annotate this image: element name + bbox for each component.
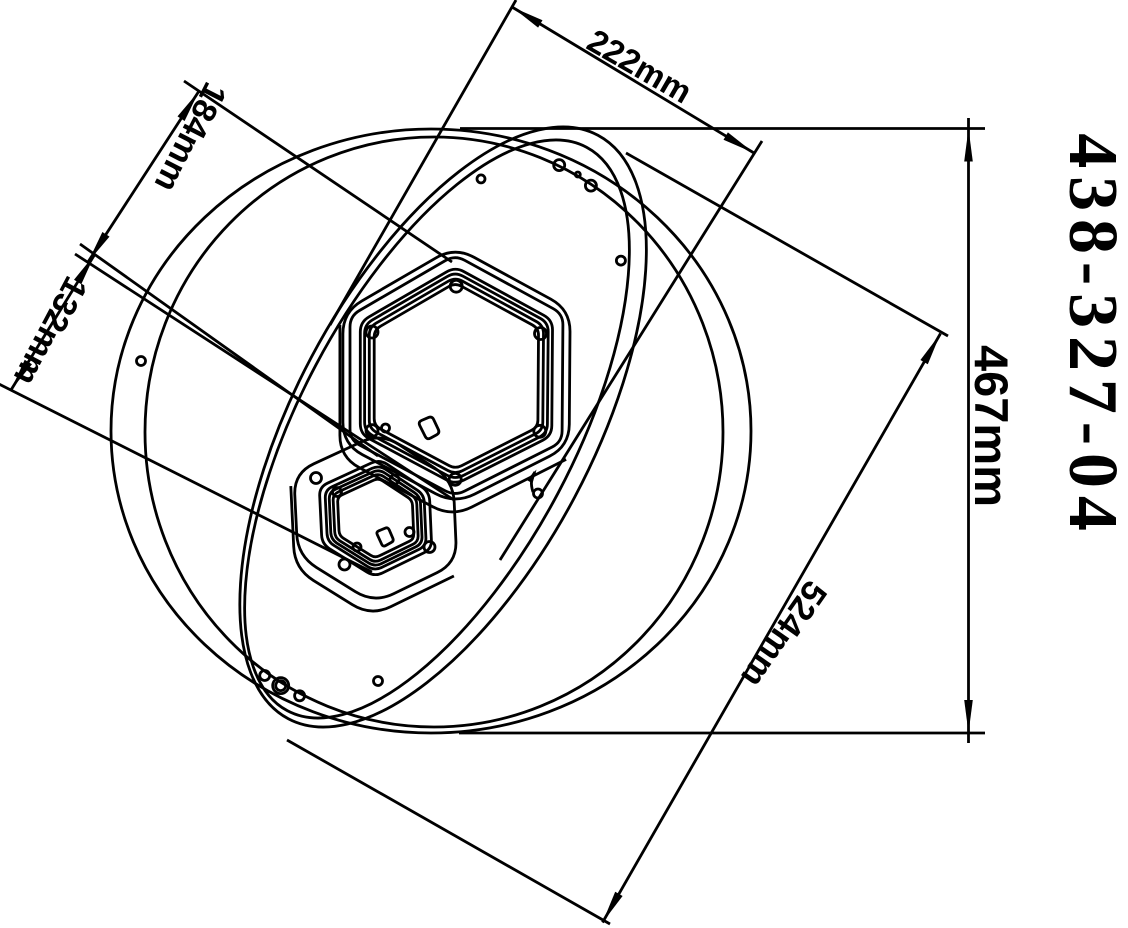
svg-text:438-327-04: 438-327-04 <box>1054 133 1128 539</box>
svg-text:467mm: 467mm <box>965 345 1018 507</box>
